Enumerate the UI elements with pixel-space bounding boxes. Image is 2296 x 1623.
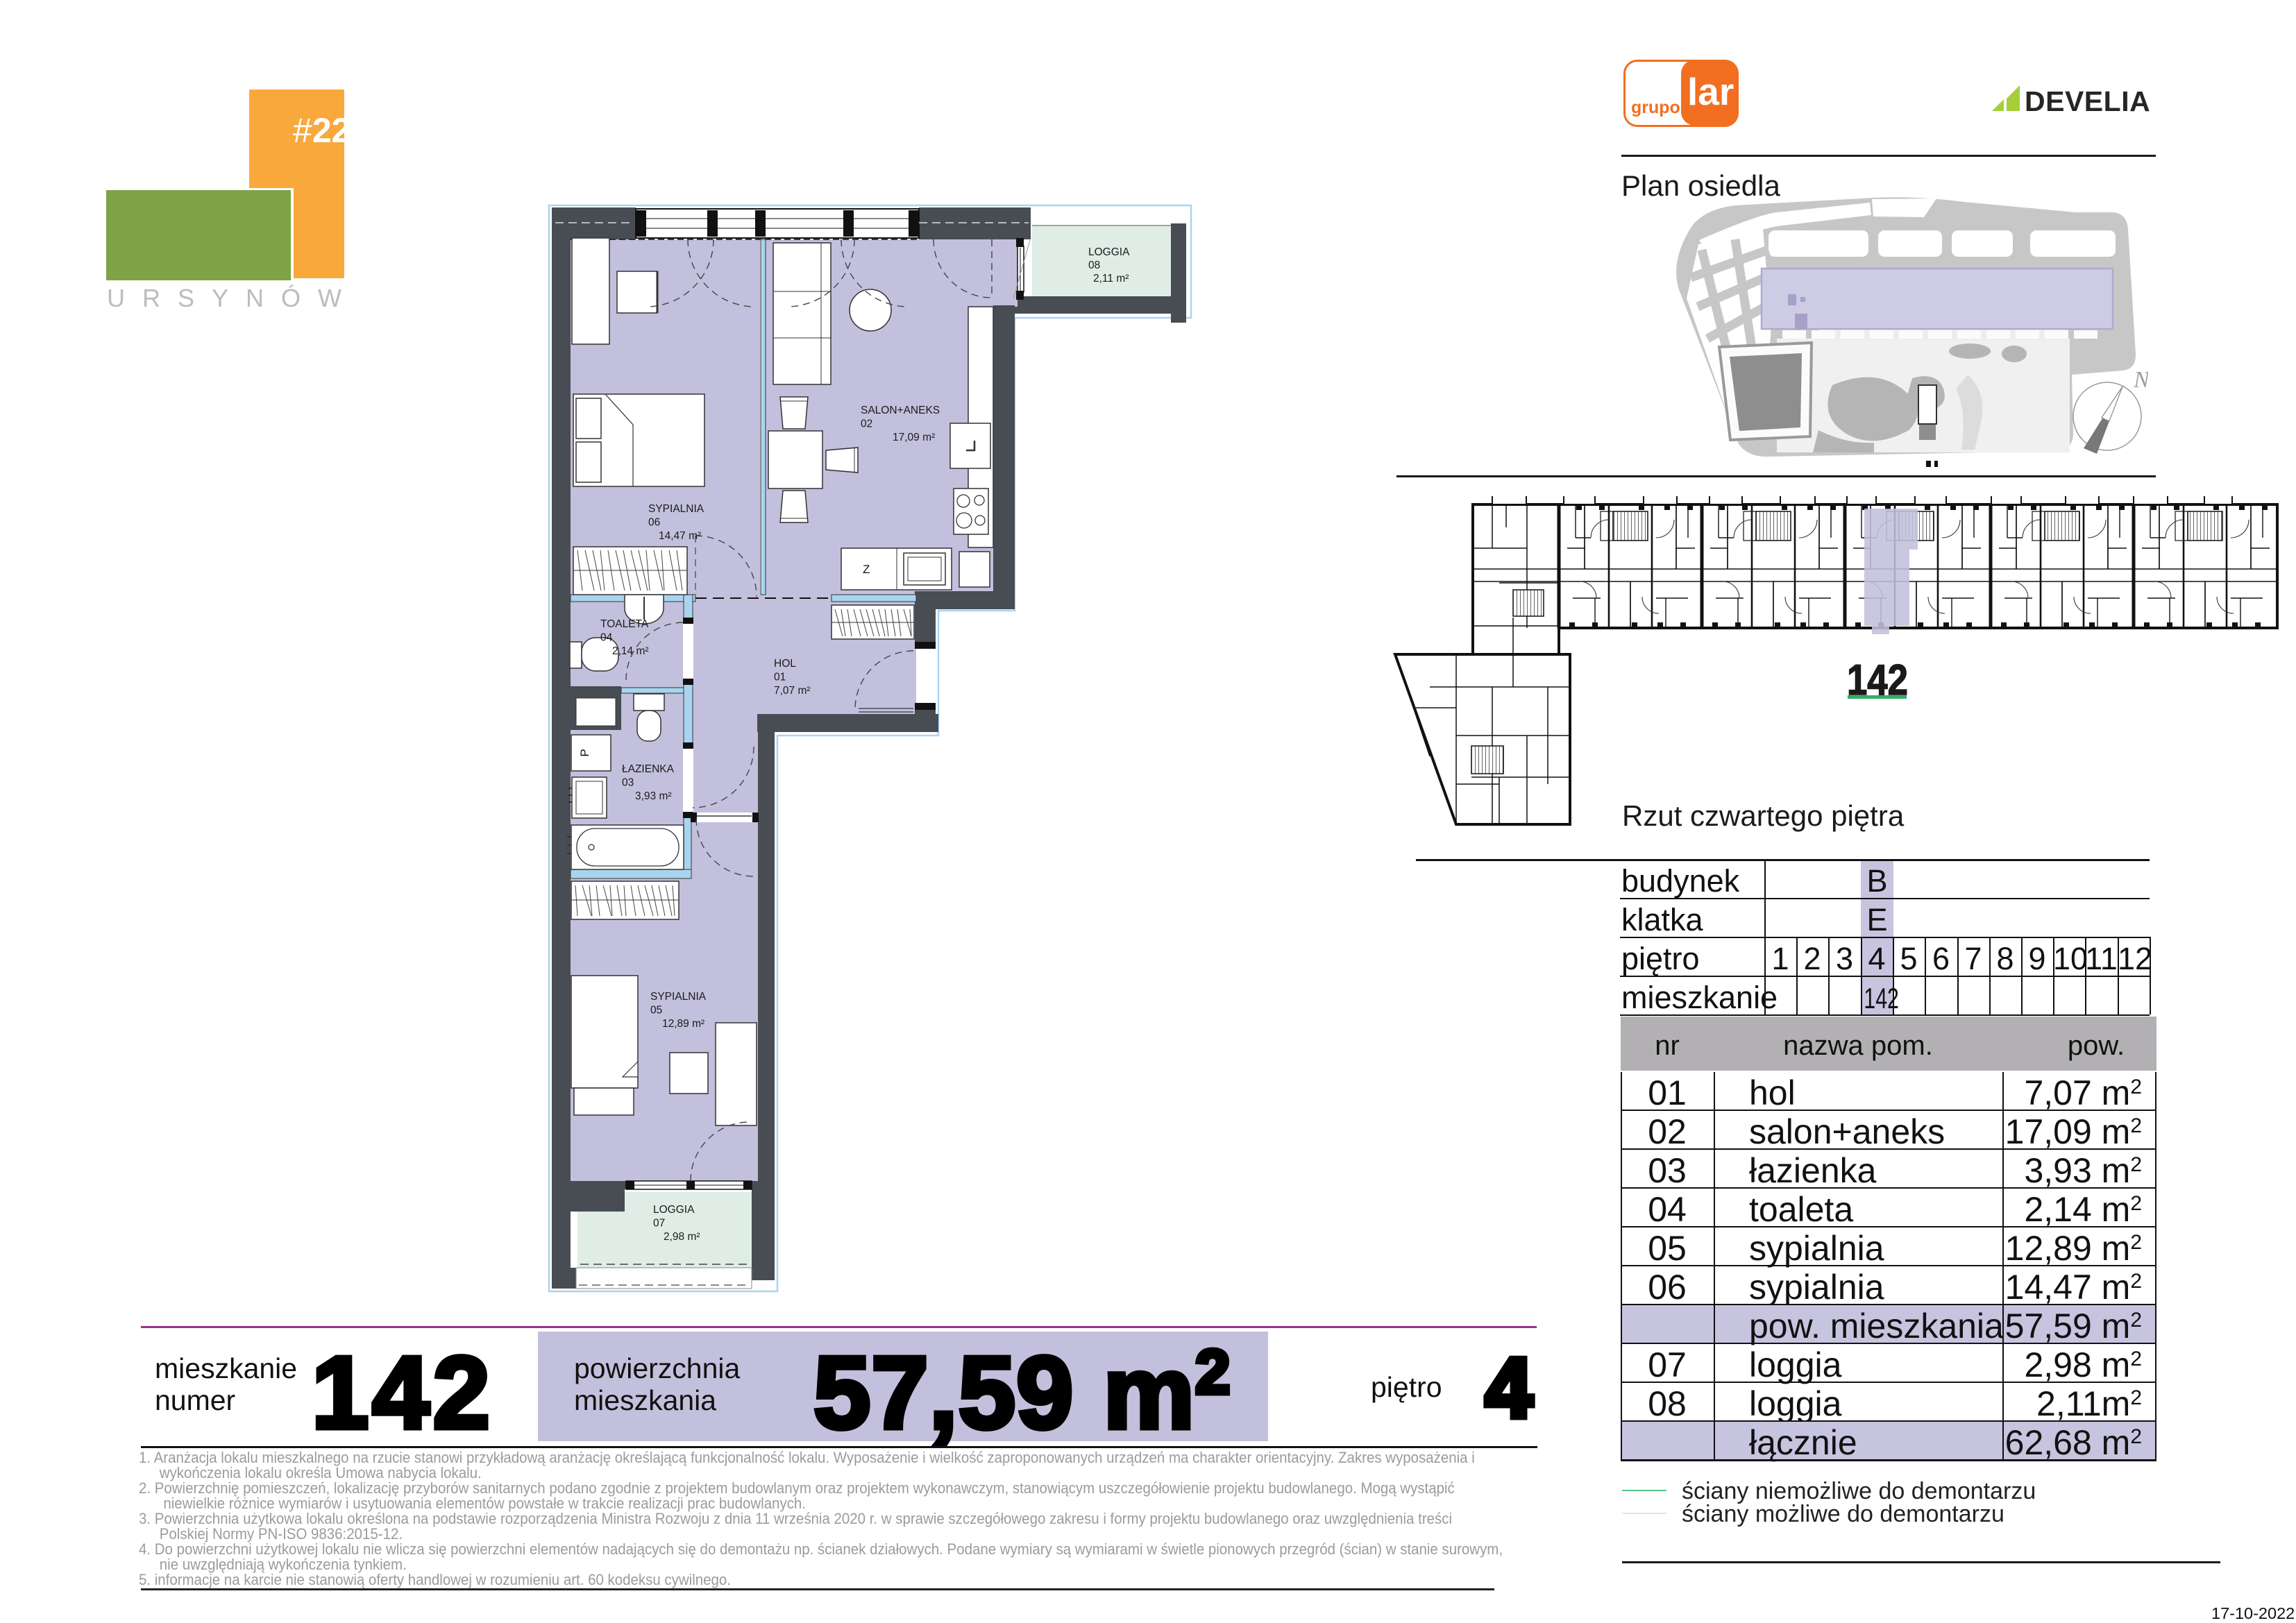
svg-text:TOALETA: TOALETA	[600, 618, 649, 630]
svg-text:07: 07	[653, 1218, 665, 1230]
svg-text:SYPIALNIA: SYPIALNIA	[648, 503, 704, 515]
svg-text:P: P	[578, 749, 591, 756]
svg-text:Z: Z	[863, 563, 870, 576]
svg-text:2,11 m²: 2,11 m²	[1093, 273, 1129, 284]
svg-text:SALON+ANEKS: SALON+ANEKS	[861, 405, 940, 416]
svg-text:17,09 m²: 17,09 m²	[893, 432, 935, 443]
svg-text:2,98 m²: 2,98 m²	[664, 1231, 700, 1243]
svg-text:02: 02	[861, 418, 872, 430]
svg-text:06: 06	[648, 517, 660, 529]
svg-text:08: 08	[1088, 260, 1100, 271]
svg-text:DEVELIA: DEVELIA	[2025, 85, 2150, 114]
svg-text:03: 03	[622, 777, 634, 789]
svg-text:LOGGIA: LOGGIA	[653, 1204, 695, 1216]
svg-text:N: N	[2133, 367, 2148, 393]
svg-text:01: 01	[774, 672, 786, 683]
svg-text:3,93 m²: 3,93 m²	[635, 790, 672, 802]
svg-text:12,89 m²: 12,89 m²	[662, 1018, 704, 1030]
svg-text:HOL: HOL	[774, 658, 796, 670]
svg-text:7,07 m²: 7,07 m²	[774, 685, 811, 697]
svg-text:2,14 m²: 2,14 m²	[612, 645, 649, 657]
svg-text:05: 05	[650, 1005, 662, 1017]
svg-text:04: 04	[600, 632, 613, 644]
svg-text:14,47 m²: 14,47 m²	[659, 530, 701, 542]
svg-text:ŁAZIENKA: ŁAZIENKA	[622, 763, 675, 775]
svg-text:SYPIALNIA: SYPIALNIA	[650, 991, 707, 1003]
svg-text:LOGGIA: LOGGIA	[1088, 246, 1130, 258]
